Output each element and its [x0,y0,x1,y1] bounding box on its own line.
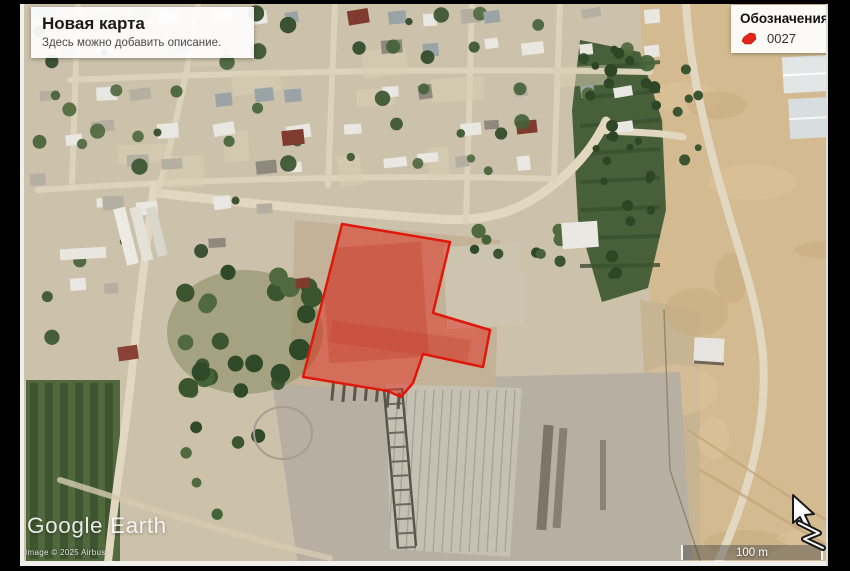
legend-panel: Обозначения 0027 [731,5,835,53]
legend-title: Обозначения [740,11,835,26]
map-subtitle: Здесь можно добавить описание. [42,37,243,50]
legend-item-0027[interactable]: 0027 [740,31,835,46]
polygon-icon [740,32,758,46]
google-earth-window: Новая карта Здесь можно добавить описани… [0,0,850,571]
scale-tick-left [681,545,683,560]
legend-item-label: 0027 [767,31,796,46]
frame-strip-left [20,0,24,566]
satellite-map[interactable] [0,0,850,571]
frame-bar-right [828,0,850,571]
map-title-card[interactable]: Новая карта Здесь можно добавить описани… [31,7,254,58]
map-viewport[interactable]: Новая карта Здесь можно добавить описани… [0,0,850,571]
google-earth-logo: Google Earth [27,513,167,539]
frame-bar-left [0,0,20,571]
scale-label: 100 m [736,547,768,559]
frame-bar-top [0,0,850,4]
map-title: Новая карта [42,14,243,34]
imagery-copyright: Image © 2025 Airbus [25,548,106,557]
frame-bar-bottom [0,566,850,571]
